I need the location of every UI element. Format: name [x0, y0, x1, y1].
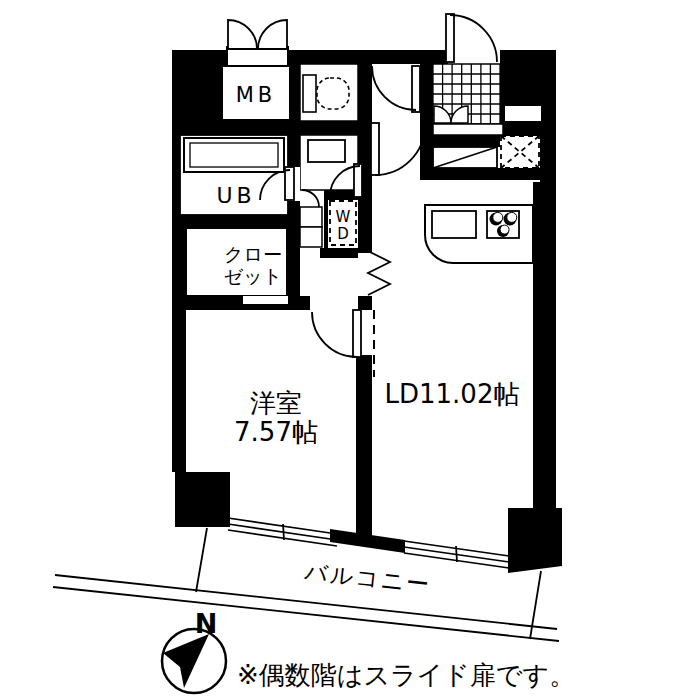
label-western-room-size: 7.57帖	[234, 417, 318, 447]
note-text: ※偶数階はスライド扉です。	[237, 660, 575, 690]
toilet-tank-icon	[303, 75, 316, 112]
pillar-bottom-right	[508, 508, 562, 573]
wall-segment	[287, 228, 300, 296]
compass-north-label: N	[195, 608, 218, 639]
hall-step	[300, 227, 322, 247]
wall-segment	[358, 64, 372, 122]
wall-segment	[172, 68, 222, 120]
wall-segment	[172, 135, 180, 213]
partition-wall	[356, 355, 372, 545]
hall-door-leaf	[412, 66, 420, 112]
label-closet-line1: クロー	[224, 243, 282, 265]
window-sash-tick	[283, 524, 284, 540]
wall-segment	[172, 228, 186, 296]
ld-door-leaf	[371, 123, 379, 175]
wall-right	[533, 182, 556, 515]
closet-opening	[243, 296, 288, 304]
washbasin-icon	[308, 140, 345, 162]
wall-segment	[430, 168, 540, 180]
entrance-door-leaf	[446, 14, 454, 62]
entrance-step	[433, 124, 503, 135]
doorway-western-room	[310, 296, 358, 310]
fridge-space	[500, 136, 540, 168]
floorplan-svg: N MB UB クロー ゼット W D 洋室 7.57帖 LD11.02帖 バル…	[0, 0, 700, 700]
wall-segment	[540, 136, 556, 182]
western-room-door-leaf	[353, 310, 361, 357]
label-mb: MB	[236, 83, 277, 107]
kitchen-sink-icon	[432, 211, 476, 238]
label-ub: UB	[216, 183, 255, 208]
window-sash-tick	[456, 546, 457, 562]
wall-segment	[172, 50, 228, 68]
toilet-bowl-icon	[317, 78, 349, 109]
washroom-door-leaf	[354, 164, 362, 197]
label-wd-line2: D	[337, 225, 349, 243]
wall-segment	[172, 296, 310, 310]
floorplan-page: N MB UB クロー ゼット W D 洋室 7.57帖 LD11.02帖 バル…	[0, 0, 700, 700]
wall-segment	[430, 135, 503, 147]
wall-segment	[358, 296, 372, 310]
ub-door-leaf	[285, 167, 294, 200]
bathtub-inner	[190, 143, 278, 167]
label-western-room: 洋室	[250, 388, 302, 418]
hall-step	[300, 207, 322, 227]
wall-segment	[420, 63, 433, 180]
wall-segment	[172, 120, 302, 135]
label-closet-line2: ゼット	[224, 265, 282, 287]
wall-niche	[505, 106, 541, 121]
label-wd-line1: W	[336, 208, 351, 226]
pillar-bottom-left	[175, 472, 230, 527]
wall-segment	[172, 310, 186, 472]
label-living-dining: LD11.02帖	[385, 379, 520, 409]
wall-corner-block	[500, 64, 556, 136]
